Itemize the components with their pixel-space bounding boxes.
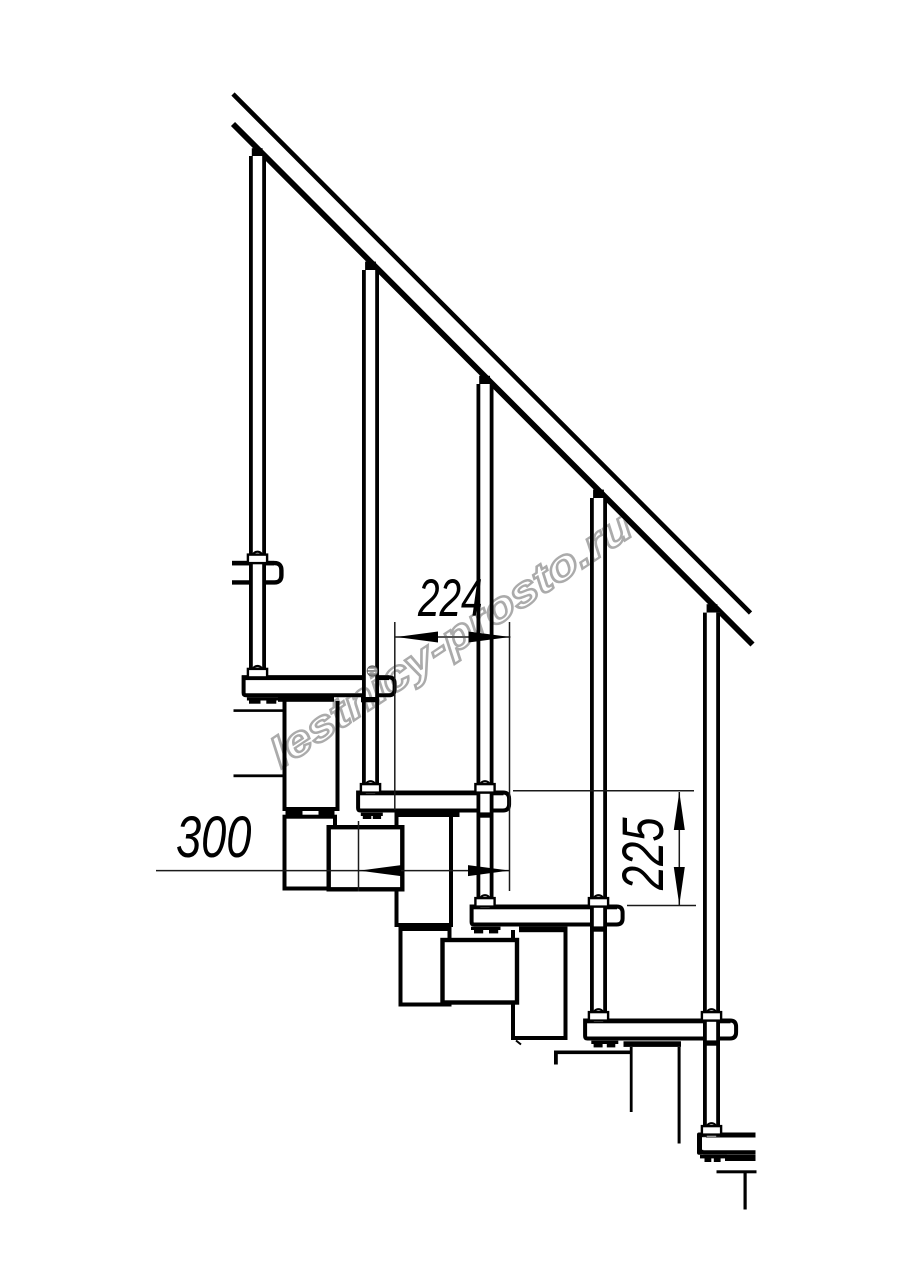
svg-text:lestnicy-prosto.ru: lestnicy-prosto.ru bbox=[262, 501, 640, 777]
